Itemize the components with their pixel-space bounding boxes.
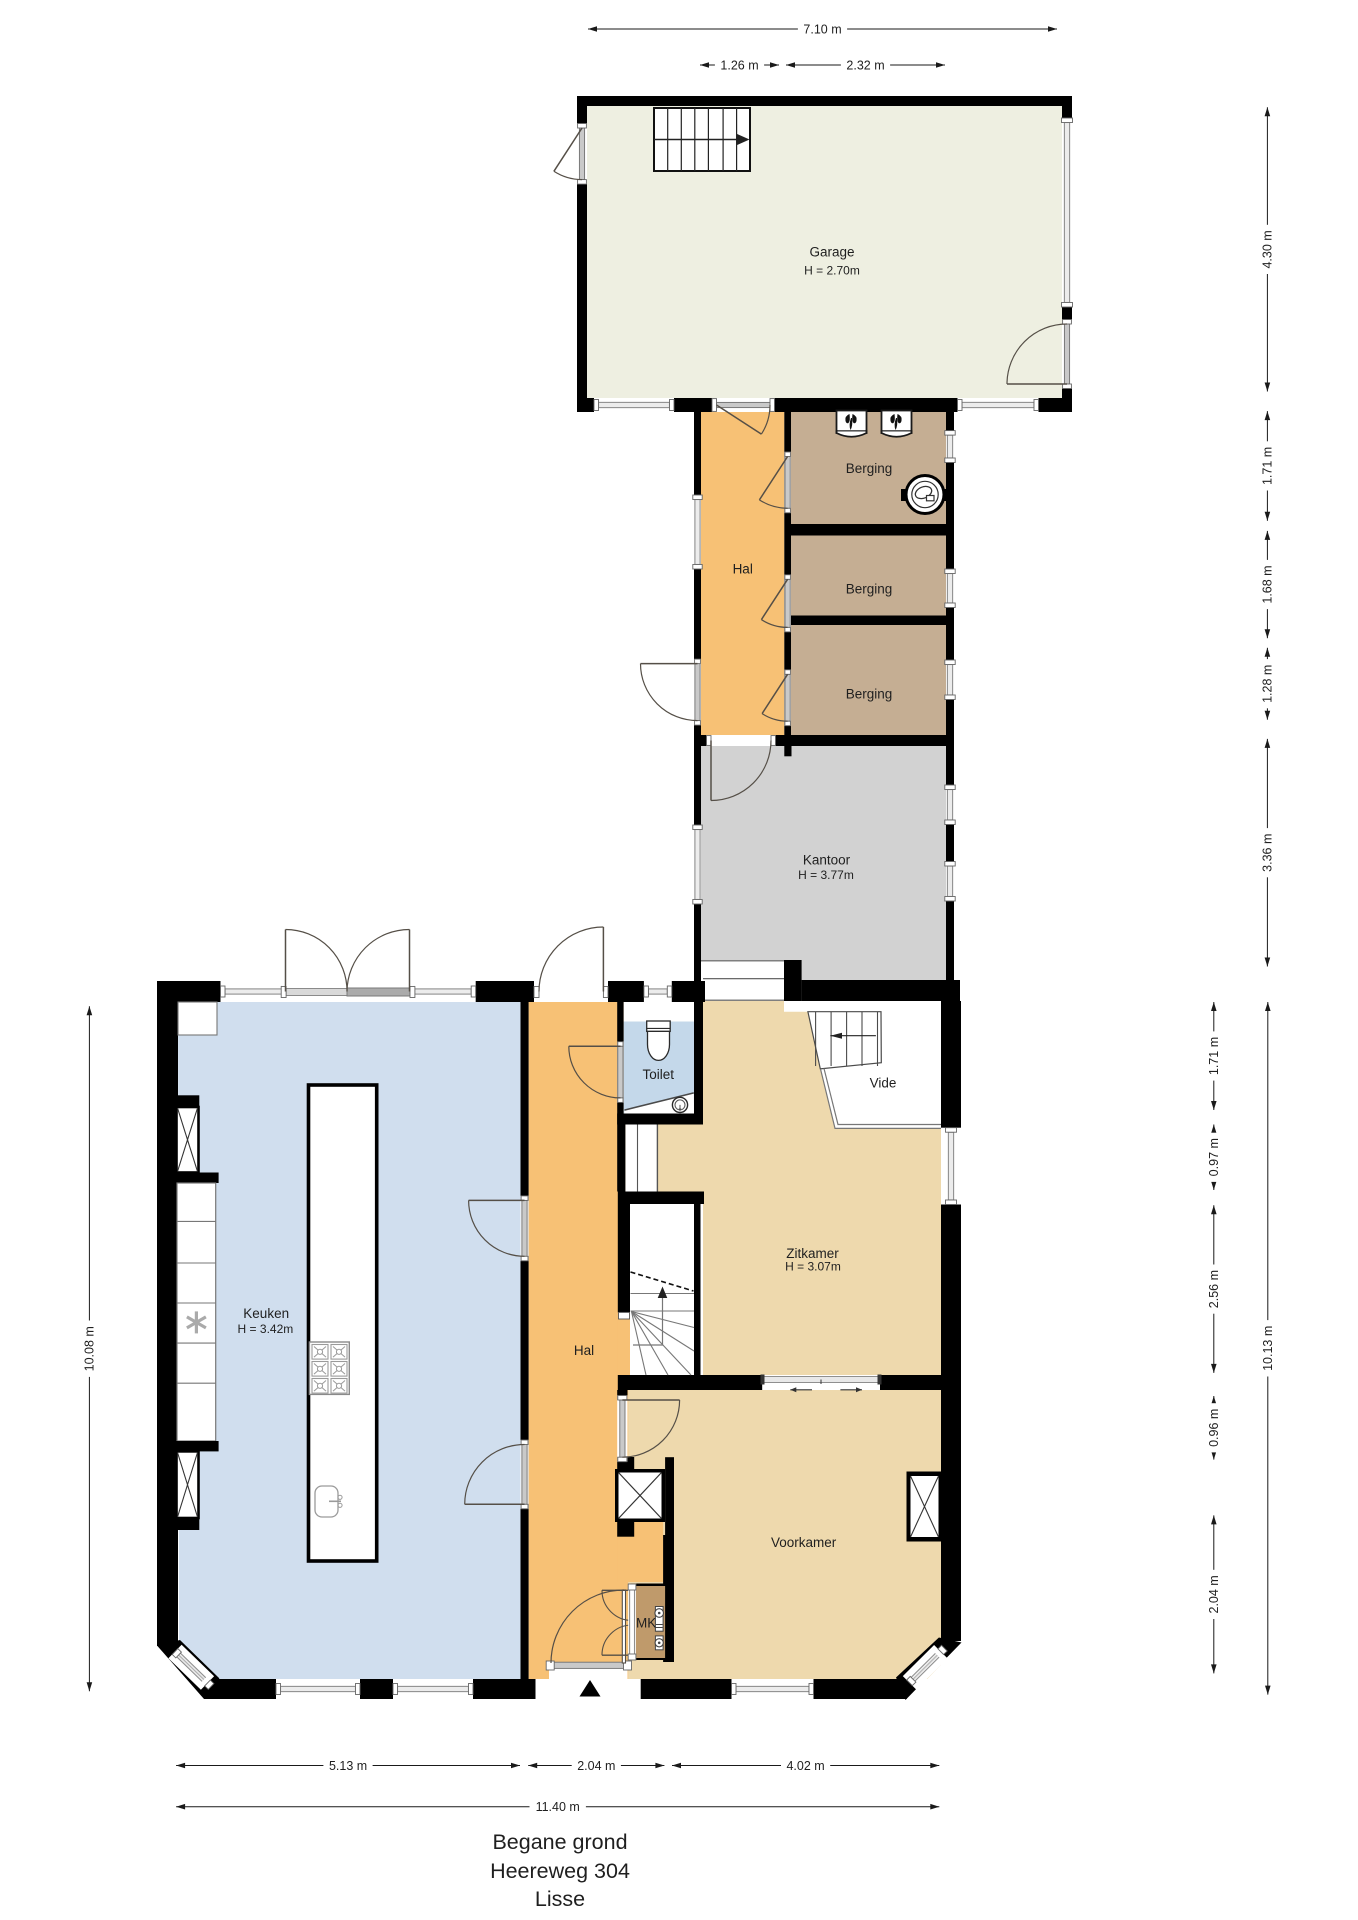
svg-text:1.71 m: 1.71 m xyxy=(1261,447,1275,485)
svg-text:1.68 m: 1.68 m xyxy=(1261,565,1275,603)
svg-text:10.08 m: 10.08 m xyxy=(83,1326,97,1371)
svg-text:Hal: Hal xyxy=(574,1343,594,1358)
svg-text:MK: MK xyxy=(636,1616,656,1631)
svg-text:3.36 m: 3.36 m xyxy=(1261,834,1275,872)
svg-text:Berging: Berging xyxy=(846,461,893,476)
svg-text:Begane grond: Begane grond xyxy=(492,1830,627,1854)
svg-text:2.04 m: 2.04 m xyxy=(577,1759,615,1773)
svg-text:1.28 m: 1.28 m xyxy=(1261,665,1275,703)
svg-text:0.97 m: 0.97 m xyxy=(1207,1138,1221,1176)
svg-text:H = 3.77m: H = 3.77m xyxy=(798,868,854,882)
svg-text:4.02 m: 4.02 m xyxy=(786,1759,824,1773)
svg-text:1.26 m: 1.26 m xyxy=(720,58,758,72)
svg-text:H = 2.70m: H = 2.70m xyxy=(804,264,860,278)
svg-text:0.96 m: 0.96 m xyxy=(1207,1409,1221,1447)
svg-text:Kantoor: Kantoor xyxy=(803,853,851,868)
svg-text:H = 3.42m: H = 3.42m xyxy=(238,1322,294,1336)
svg-text:11.40 m: 11.40 m xyxy=(536,1800,580,1814)
svg-text:Garage: Garage xyxy=(809,245,854,260)
svg-text:1.71 m: 1.71 m xyxy=(1207,1037,1221,1075)
svg-text:5.13 m: 5.13 m xyxy=(329,1759,367,1773)
svg-text:2.32 m: 2.32 m xyxy=(846,58,884,72)
svg-text:4.30 m: 4.30 m xyxy=(1261,230,1275,268)
svg-text:Heereweg 304: Heereweg 304 xyxy=(490,1859,630,1883)
svg-text:Toilet: Toilet xyxy=(642,1067,674,1082)
svg-text:Berging: Berging xyxy=(846,582,893,597)
svg-text:Voorkamer: Voorkamer xyxy=(771,1535,837,1550)
svg-text:Lisse: Lisse xyxy=(535,1887,585,1911)
svg-text:Keuken: Keuken xyxy=(243,1306,289,1321)
svg-text:2.04 m: 2.04 m xyxy=(1207,1575,1221,1613)
svg-text:Hal: Hal xyxy=(733,562,753,577)
svg-text:H = 3.07m: H = 3.07m xyxy=(785,1259,841,1273)
svg-text:10.13 m: 10.13 m xyxy=(1261,1326,1275,1371)
svg-text:7.10 m: 7.10 m xyxy=(803,22,841,36)
svg-text:Berging: Berging xyxy=(846,687,893,702)
svg-text:Vide: Vide xyxy=(870,1076,897,1091)
svg-text:2.56 m: 2.56 m xyxy=(1207,1270,1221,1308)
